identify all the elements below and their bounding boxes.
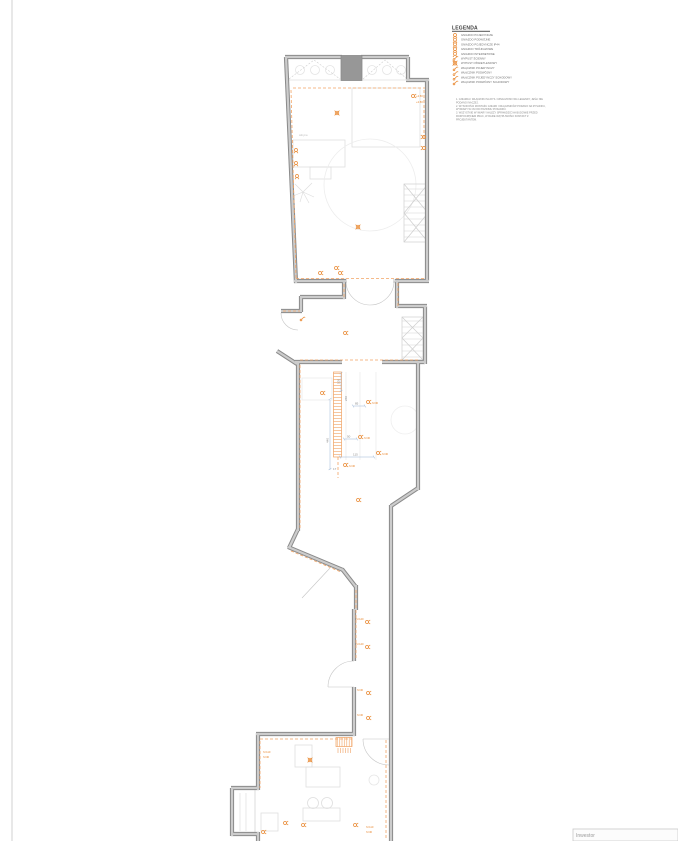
devices-layer: [262, 94, 426, 834]
dim-text: 50: [347, 435, 351, 439]
legend-item-label: WYPUST OŚWIETLENIOWY: [461, 60, 497, 65]
room-label: witryna: [299, 133, 308, 137]
level-label: +2.50: [416, 100, 423, 104]
height-label: h=30: [366, 830, 373, 834]
height-label: h=30: [357, 688, 364, 692]
socket-icon: [319, 271, 324, 275]
socket-icon: [344, 331, 349, 335]
socket-icon: [284, 821, 289, 825]
socket-icon: [366, 620, 371, 624]
ceiling-light-icon: [308, 758, 313, 763]
legend-note-line: PROJEKTANTEM.: [456, 118, 477, 121]
socket-icon: [321, 391, 326, 395]
socket-double-icon: [453, 38, 457, 43]
socket-icon: [294, 162, 298, 167]
legend-item-label: WYPUST ŚCIENNY: [461, 56, 486, 61]
socket-single-icon: [453, 34, 457, 39]
socket-icon: [421, 135, 426, 139]
legend-title: LEGENDA: [452, 26, 478, 32]
switch-single-stair-icon: [453, 76, 458, 80]
socket-icon: [367, 716, 372, 720]
drawing-sheet: 100 260 85 50 440 115 17 +2.50 +2.50 h=3…: [0, 0, 678, 841]
switch-single-icon: [453, 67, 458, 71]
height-label: h=30: [357, 713, 364, 717]
legend-item-label: WŁĄCZNIK POJEDYNCZY: [461, 66, 495, 70]
dim-text: 17: [333, 467, 337, 471]
socket-icon: [421, 146, 426, 150]
legend-item-label: GNIAZDO POJEDYNCZE IP44: [461, 42, 500, 46]
height-label: h=30: [364, 436, 371, 440]
socket-three-phase-icon: [453, 48, 457, 53]
legend-item-label: GNIAZDO TRÓJFAZOWE: [461, 46, 493, 51]
legend-item-label: WŁĄCZNIK PODWÓJNY SCHODOWY: [461, 79, 509, 84]
socket-icon: [366, 645, 371, 649]
plant-sketch: [293, 183, 314, 203]
height-label: h=30: [349, 464, 356, 468]
legend: LEGENDA GNIAZDO POJEDYNCZE GNIAZDO PODWÓ…: [452, 26, 546, 122]
socket-icon: [359, 435, 364, 439]
socket-ip44-icon: [453, 43, 457, 48]
legend-item-label: GNIAZDO PODWÓJNE: [461, 37, 490, 42]
dim-text: 440: [326, 438, 330, 443]
height-label: h=30: [372, 401, 379, 405]
legend-item-label: GNIAZDO POJEDYNCZE: [461, 33, 493, 37]
level-label: +2.50: [416, 94, 423, 98]
dim-text: 115: [353, 453, 358, 457]
socket-icon: [357, 498, 362, 502]
cable-tray: [334, 372, 353, 753]
legend-item-label: WŁĄCZNIK POJEDYNCZY SCHODOWY: [461, 75, 512, 79]
dimensions-layer: 100 260 85 50 440 115 17: [326, 372, 376, 471]
dim-text: 260: [344, 396, 348, 401]
ceiling-light-icon: [453, 61, 458, 66]
legend-item-label: WŁĄCZNIK PODWÓJNY: [461, 70, 492, 75]
wiring-layer: [260, 88, 425, 838]
legend-underline: [452, 31, 490, 32]
socket-icon: [367, 691, 372, 695]
socket-icon: [295, 175, 299, 180]
socket-icon: [354, 823, 359, 827]
socket-icon: [302, 823, 307, 827]
socket-internet-icon: [453, 52, 457, 57]
socket-icon: [377, 451, 382, 455]
switch-icon: [300, 317, 305, 321]
floor-plan-canvas: 100 260 85 50 440 115 17 +2.50 +2.50 h=3…: [0, 0, 678, 841]
height-label: h=110: [366, 825, 374, 829]
wall-pier: [341, 56, 362, 81]
annotations-layer: +2.50 +2.50 h=30 h=30 h=30 h=30 h=140 h=…: [263, 94, 423, 834]
titleblock-cell: Inwestor: [573, 829, 678, 841]
switch-double-icon: [453, 72, 458, 76]
wall-outlet-icon: [453, 57, 458, 61]
height-label: h=30: [382, 452, 389, 456]
ceiling-light-icon: [335, 111, 340, 116]
ceiling-light-icon: [356, 225, 361, 230]
distribution-board: [336, 738, 352, 747]
socket-icon: [367, 400, 372, 404]
height-label: h=30: [263, 755, 270, 759]
socket-icon: [344, 463, 349, 467]
switch-double-stair-icon: [453, 81, 458, 85]
socket-icon: [339, 271, 344, 275]
legend-item-label: GNIAZDO INTERNETOWE: [461, 52, 495, 56]
dim-text: 85: [355, 402, 359, 406]
legend-notes: 1. GNIAZDA I WŁĄCZNIKI NA RYS. OZNACZONO…: [456, 98, 546, 121]
dim-text: 100: [337, 379, 341, 384]
socket-icon: [262, 830, 267, 834]
height-label: h=110: [263, 750, 271, 754]
socket-icon: [335, 266, 340, 270]
height-label: h=140: [356, 642, 364, 646]
socket-icon: [294, 149, 298, 154]
height-label: h=140: [356, 617, 364, 621]
titleblock-label: Inwestor: [576, 833, 595, 839]
